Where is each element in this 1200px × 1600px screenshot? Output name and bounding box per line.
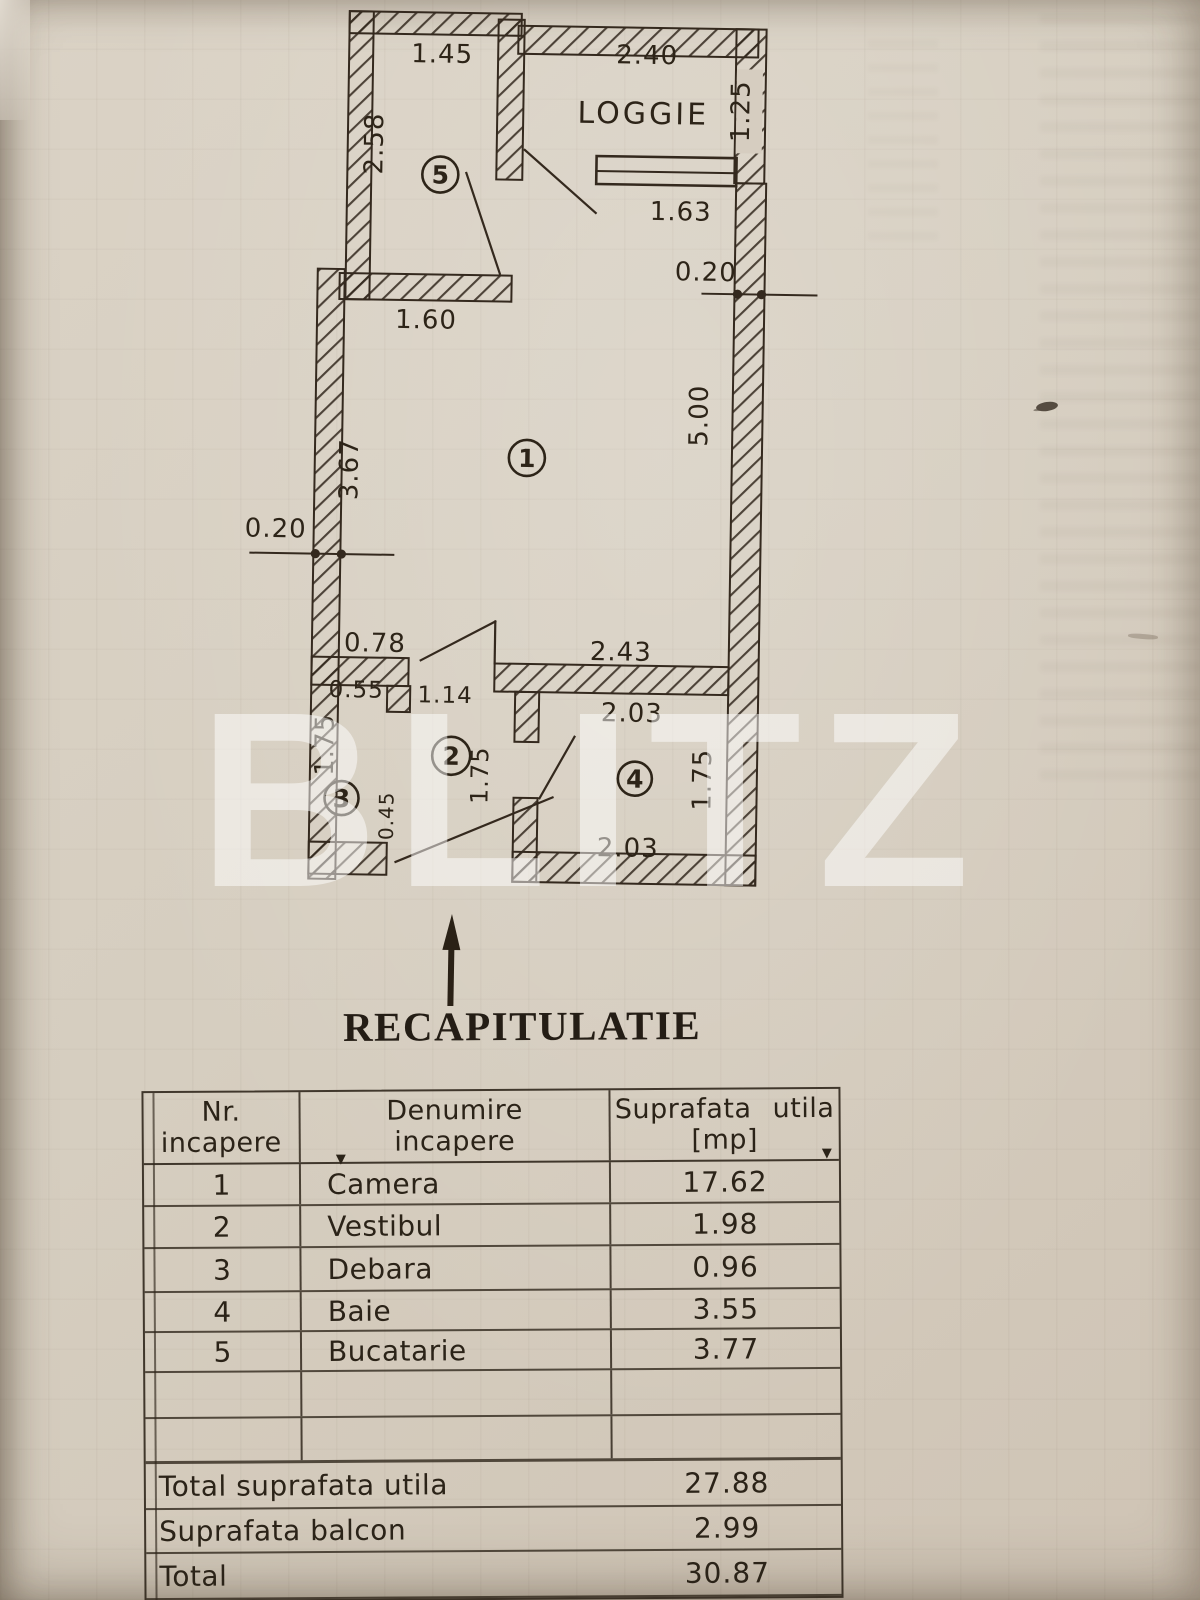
dim-label: 2.40 bbox=[616, 40, 678, 71]
scan-arrow-mark: ▼ bbox=[822, 1146, 832, 1161]
total-label: Suprafata balcon bbox=[146, 1507, 613, 1552]
cell-name bbox=[302, 1370, 612, 1416]
header-nr-incapere: Nr. incapere bbox=[143, 1092, 300, 1163]
table-row: 2 Vestibul 1.98 bbox=[144, 1203, 839, 1249]
door-vestibul bbox=[421, 620, 496, 661]
cell-area: 3.55 bbox=[612, 1289, 840, 1328]
cell-name: Camera bbox=[301, 1162, 611, 1204]
dim-label: 5.00 bbox=[684, 384, 715, 446]
cell-nr: 3 bbox=[144, 1248, 301, 1291]
dim-label: 1.25 bbox=[726, 80, 757, 142]
table-row-empty bbox=[145, 1369, 840, 1419]
total-row: Total suprafata utila 27.88 bbox=[146, 1460, 841, 1510]
total-row: Suprafata balcon 2.99 bbox=[146, 1506, 841, 1554]
door-room5 bbox=[465, 173, 502, 274]
header-line: Nr. bbox=[202, 1097, 241, 1128]
room-number: 5 bbox=[431, 160, 449, 189]
table-row: 1 Camera 17.62 bbox=[144, 1161, 839, 1207]
loggia-label: LOGGIE bbox=[577, 96, 709, 133]
dim-label: 1.63 bbox=[650, 197, 712, 228]
cell-area: 17.62 bbox=[611, 1161, 839, 1202]
header-line: Denumire bbox=[386, 1095, 523, 1127]
cell-name: Baie bbox=[302, 1290, 612, 1330]
page-title: RECAPITULATIE bbox=[343, 1001, 701, 1051]
cell-name bbox=[302, 1416, 612, 1460]
wall bbox=[339, 273, 511, 302]
total-value: 30.87 bbox=[613, 1550, 841, 1595]
wall bbox=[350, 11, 522, 36]
cell-area: 0.96 bbox=[611, 1245, 839, 1288]
dim-label: 3.67 bbox=[334, 438, 365, 500]
dim-label: 0.20 bbox=[675, 257, 737, 288]
cell-nr: 2 bbox=[144, 1206, 301, 1247]
blitz-watermark: BLITZ bbox=[198, 675, 986, 925]
dim-label: 1.45 bbox=[411, 39, 473, 70]
cell-name: Bucatarie bbox=[302, 1330, 612, 1370]
header-line: Suprafata utila bbox=[615, 1093, 835, 1125]
cell-nr: 1 bbox=[144, 1164, 301, 1205]
table-header-row: Nr. incapere Denumire incapere Suprafata… bbox=[143, 1089, 838, 1165]
total-value: 2.99 bbox=[613, 1506, 841, 1549]
cell-nr: 5 bbox=[145, 1332, 302, 1371]
cell-nr bbox=[145, 1372, 302, 1417]
dim-label: 0.78 bbox=[344, 628, 406, 659]
table-row: 4 Baie 3.55 bbox=[145, 1289, 840, 1333]
scanned-floor-plan-document: 5 1 2 3 4 1.45 2.40 LOGGIE 1.25 2.58 1.6… bbox=[0, 0, 1200, 1600]
table-row-empty bbox=[145, 1415, 840, 1464]
cell-area bbox=[612, 1369, 840, 1414]
total-value: 27.88 bbox=[613, 1460, 841, 1505]
cell-nr: 4 bbox=[145, 1292, 302, 1331]
header-line: incapere bbox=[394, 1126, 515, 1158]
total-label: Total bbox=[146, 1551, 613, 1598]
cell-name: Vestibul bbox=[301, 1204, 611, 1246]
header-suprafata-utila: Suprafata utila [mp] bbox=[610, 1089, 838, 1160]
dim-label: 2.58 bbox=[359, 112, 390, 174]
total-row: Total 30.87 bbox=[146, 1550, 841, 1600]
recap-table: Nr. incapere Denumire incapere Suprafata… bbox=[141, 1087, 843, 1600]
table-row: 3 Debara 0.96 bbox=[144, 1245, 839, 1293]
header-line: [mp] bbox=[691, 1124, 758, 1155]
table-row: 5 Bucatarie 3.77 bbox=[145, 1329, 840, 1373]
dim-label: 1.60 bbox=[395, 305, 457, 336]
door-loggia bbox=[524, 150, 597, 213]
cell-area: 1.98 bbox=[611, 1203, 839, 1244]
total-label: Total suprafata utila bbox=[146, 1461, 613, 1508]
header-denumire-incapere: Denumire incapere bbox=[300, 1090, 610, 1162]
scan-arrow-mark: ▼ bbox=[336, 1152, 346, 1167]
dim-label: 0.20 bbox=[245, 514, 307, 545]
loggia-railing bbox=[596, 156, 736, 186]
room-number: 1 bbox=[518, 444, 536, 473]
cell-name: Debara bbox=[301, 1246, 611, 1290]
cell-area bbox=[612, 1415, 840, 1458]
header-line: incapere bbox=[161, 1127, 282, 1159]
cell-nr bbox=[145, 1418, 302, 1461]
cell-area: 3.77 bbox=[612, 1329, 840, 1368]
door-vestibul-jamb bbox=[495, 621, 496, 663]
